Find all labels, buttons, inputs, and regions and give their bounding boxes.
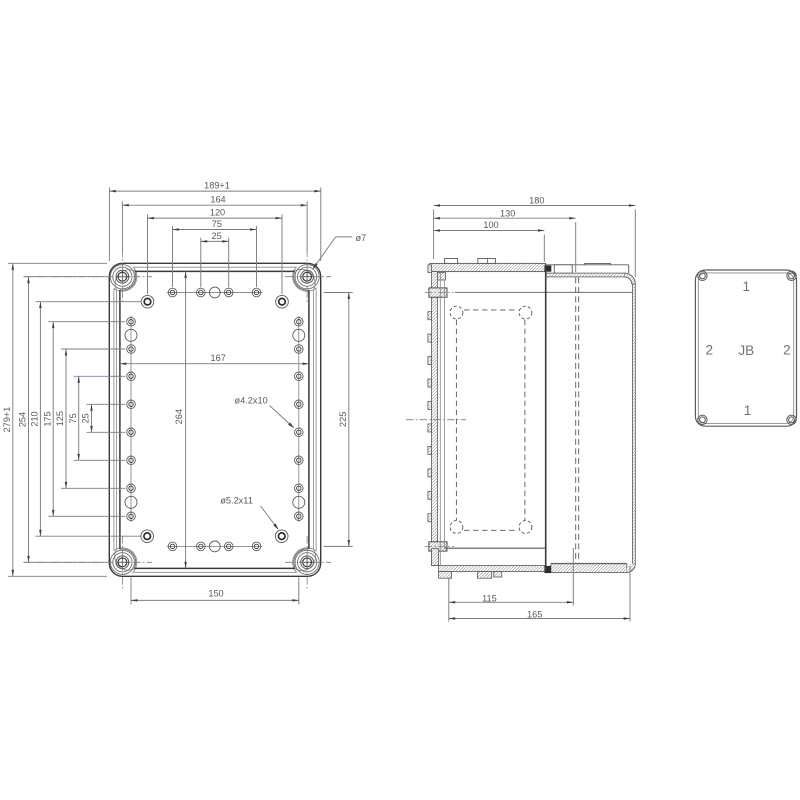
svg-text:ø4.2x10: ø4.2x10 <box>235 396 268 406</box>
svg-text:25: 25 <box>81 413 91 423</box>
svg-text:225: 225 <box>338 412 348 427</box>
svg-text:1: 1 <box>744 403 752 418</box>
svg-text:ø5.2x11: ø5.2x11 <box>220 496 253 506</box>
svg-text:180: 180 <box>529 196 544 206</box>
svg-text:150: 150 <box>208 589 223 599</box>
svg-text:189+1: 189+1 <box>204 181 230 191</box>
svg-text:125: 125 <box>55 411 65 426</box>
svg-text:75: 75 <box>68 413 78 423</box>
svg-text:2: 2 <box>706 343 714 358</box>
svg-text:JB: JB <box>738 343 754 358</box>
svg-text:264: 264 <box>174 409 184 424</box>
svg-text:254: 254 <box>18 412 28 427</box>
svg-text:2: 2 <box>783 343 791 358</box>
svg-text:120: 120 <box>210 207 225 217</box>
svg-text:165: 165 <box>527 609 542 619</box>
svg-text:75: 75 <box>212 219 222 229</box>
svg-text:210: 210 <box>30 411 40 426</box>
svg-text:167: 167 <box>211 353 226 363</box>
svg-text:115: 115 <box>482 594 497 604</box>
svg-text:130: 130 <box>500 209 515 219</box>
svg-text:175: 175 <box>42 411 52 426</box>
svg-text:1: 1 <box>743 279 751 294</box>
svg-text:25: 25 <box>211 231 221 241</box>
svg-text:164: 164 <box>210 195 225 205</box>
svg-text:100: 100 <box>483 220 498 230</box>
svg-text:279+1: 279+1 <box>2 407 12 433</box>
svg-text:ø7: ø7 <box>356 233 367 243</box>
